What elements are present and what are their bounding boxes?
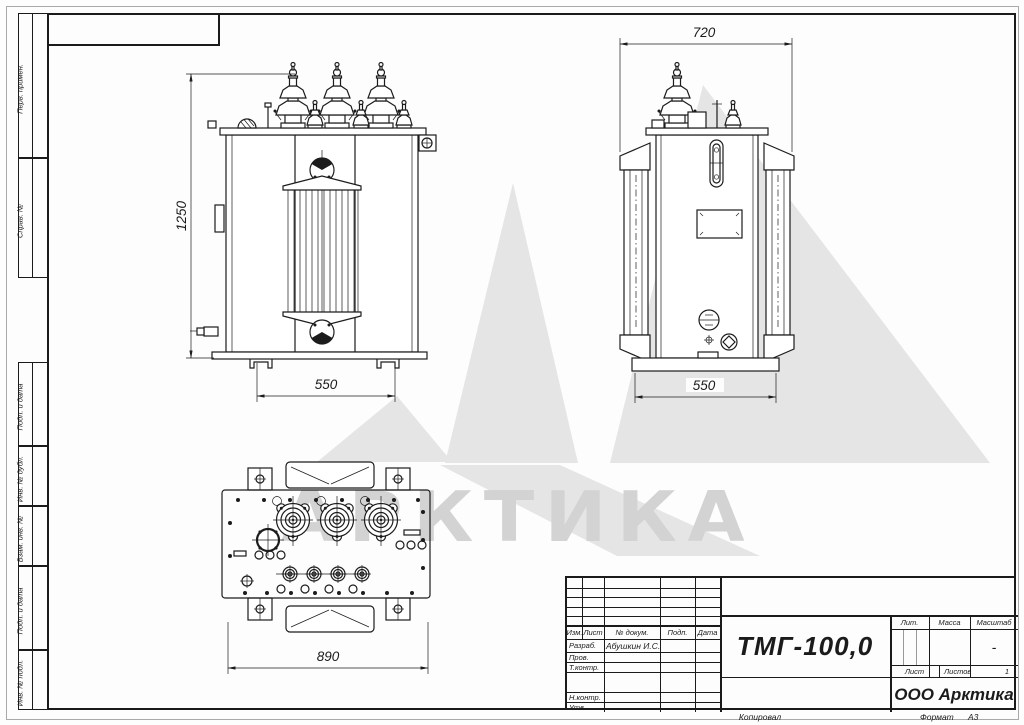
col-podp: Подп.	[660, 625, 695, 639]
scale-label: Масштаб	[970, 615, 1018, 629]
dim-front-height: 1250	[174, 200, 189, 231]
sheets-value: 1	[999, 665, 1015, 677]
front-view: 1250 550	[174, 63, 436, 403]
scale-value: -	[970, 629, 1018, 665]
side-view: 720 550	[620, 25, 794, 403]
drawing-sheet: АРКТИКА	[0, 0, 1024, 725]
col-docnum: № докум.	[604, 625, 660, 639]
top-view: 890	[222, 462, 430, 674]
sheets-label: Листов	[939, 665, 994, 677]
row-razrab-value: Абушкин И.С.	[604, 639, 662, 652]
dim-front-width: 550	[315, 377, 338, 392]
format-label: Формат	[920, 712, 954, 722]
row-razrab-label: Разраб.	[567, 639, 606, 652]
mass-label: Масса	[929, 615, 970, 629]
col-list: Лист	[582, 625, 604, 639]
format-value: А3	[968, 712, 978, 722]
row-nkontr-label: Н.контр.	[567, 692, 606, 702]
col-data: Дата	[695, 625, 720, 639]
row-prov-label: Пров.	[567, 652, 606, 662]
dim-top-length: 890	[317, 649, 340, 664]
dim-side-depth: 720	[693, 25, 716, 40]
title-block: Изм. Лист № докум. Подп. Дата Разраб. Аб…	[565, 576, 1016, 710]
row-utv-label: Утв.	[567, 702, 606, 712]
dim-side-width: 550	[693, 378, 716, 393]
row-tkontr-label: Т.контр.	[567, 662, 606, 672]
lit-label: Лит.	[890, 615, 929, 629]
designation: ТМГ-100,0	[720, 615, 890, 677]
copied-label: Копировал	[715, 712, 805, 722]
sheet-label: Лист	[890, 665, 939, 677]
company-name: ООО Арктика	[890, 677, 1018, 712]
col-izm: Изм.	[567, 625, 582, 639]
